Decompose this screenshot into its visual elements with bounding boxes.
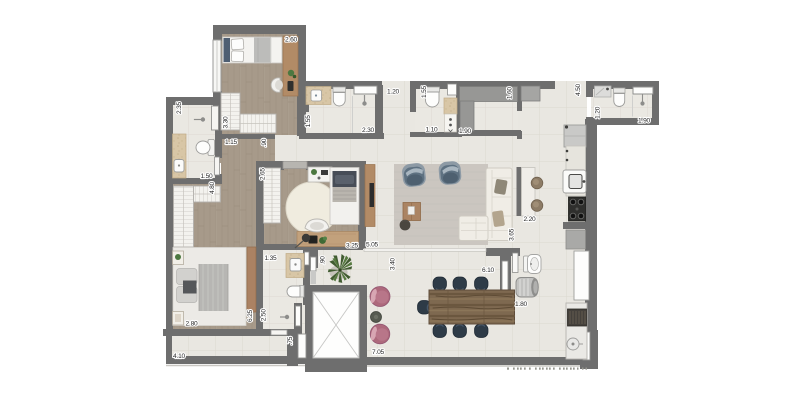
svg-text:2.50: 2.50 [261, 309, 268, 322]
svg-text:4.10: 4.10 [173, 353, 186, 360]
svg-text:3.30: 3.30 [223, 116, 230, 129]
svg-text:.90: .90 [261, 138, 268, 147]
svg-text:3.65: 3.65 [508, 228, 515, 241]
svg-text:1.55: 1.55 [305, 115, 312, 128]
svg-text:1.35: 1.35 [264, 255, 277, 262]
svg-text:3.40: 3.40 [390, 258, 397, 271]
svg-text:2.20: 2.20 [523, 216, 536, 223]
svg-text:.90: .90 [320, 256, 327, 265]
svg-text:1.15: 1.15 [225, 139, 238, 146]
svg-text:1.10: 1.10 [425, 127, 438, 134]
svg-text:3.25: 3.25 [346, 243, 359, 250]
svg-text:4.50: 4.50 [575, 83, 582, 96]
svg-text:1.50: 1.50 [200, 173, 213, 180]
svg-text:1.55: 1.55 [421, 85, 428, 98]
svg-text:.75: .75 [287, 336, 294, 345]
svg-text:1.20: 1.20 [594, 106, 601, 119]
svg-text:2.60: 2.60 [285, 37, 298, 44]
svg-text:6.10: 6.10 [482, 267, 495, 274]
svg-text:5.05: 5.05 [366, 242, 379, 249]
svg-text:4.80: 4.80 [209, 181, 216, 194]
svg-text:1.80: 1.80 [515, 301, 528, 308]
svg-text:1.60: 1.60 [507, 87, 514, 100]
svg-text:2.65: 2.65 [260, 168, 267, 181]
svg-text:2.35: 2.35 [176, 101, 183, 114]
svg-text:2.80: 2.80 [185, 321, 198, 328]
svg-text:7.05: 7.05 [372, 349, 385, 356]
svg-text:1.90: 1.90 [459, 128, 472, 135]
svg-text:1.90: 1.90 [638, 118, 651, 125]
svg-text:1.20: 1.20 [387, 89, 400, 96]
svg-text:6.25: 6.25 [247, 309, 254, 322]
svg-text:2.30: 2.30 [362, 127, 375, 134]
